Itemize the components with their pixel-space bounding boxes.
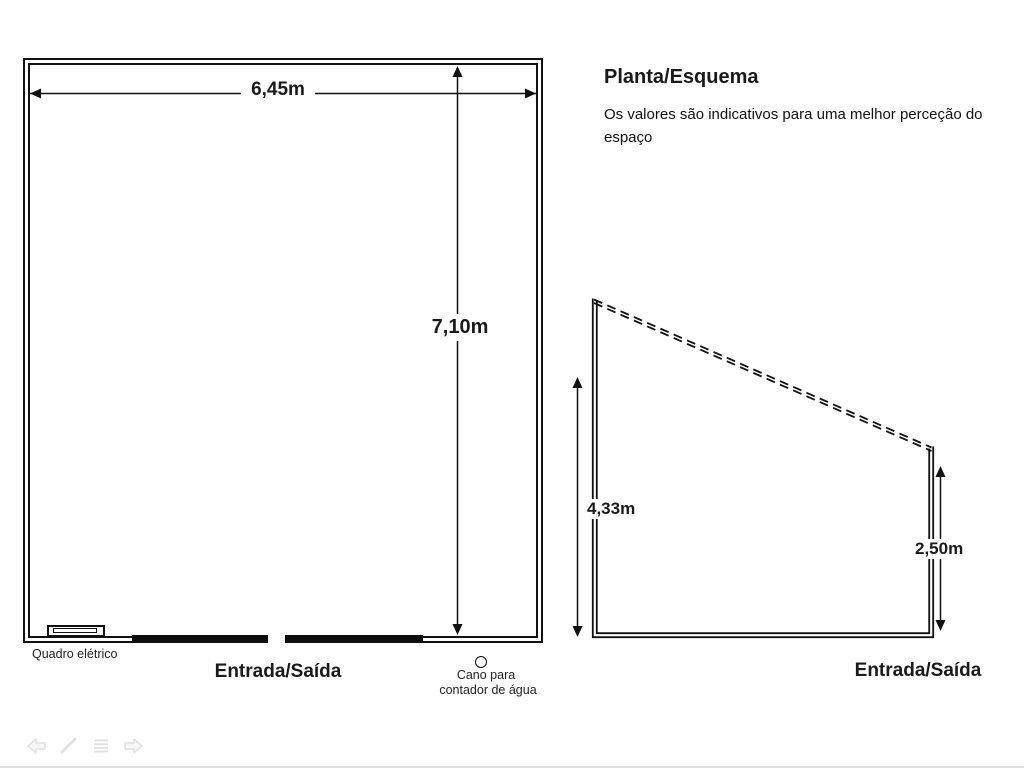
presentation-slide: { "slide": { "title": "Planta/Esquema", … [0, 0, 1024, 768]
section-right-height-label: 2,50m [911, 539, 967, 559]
floor-plan-room-outline [23, 58, 543, 643]
section-left-height-label: 4,33m [584, 499, 638, 519]
pen-icon[interactable] [58, 736, 80, 756]
section-view-sloped-roof-dashed-line [594, 300, 932, 452]
electrical-panel-symbol [47, 625, 105, 637]
water-pipe-label-line1: Cano para [457, 668, 515, 682]
page-subtitle: Os valores são indicativos para uma melh… [604, 103, 996, 149]
menu-icon[interactable] [90, 736, 112, 756]
floor-plan-door-segment-right [285, 635, 423, 641]
water-pipe-label-line2: contador de água [439, 683, 536, 697]
floor-plan-entrance-label: Entrada/Saída [215, 661, 342, 683]
previous-slide-icon[interactable] [26, 736, 48, 756]
section-view-walls [593, 299, 933, 638]
electrical-panel-label: Quadro elétrico [32, 647, 117, 661]
page-title: Planta/Esquema [604, 66, 759, 89]
height-dimension-label: 7,10m [426, 314, 495, 341]
water-pipe-symbol [475, 656, 487, 668]
presenter-toolbar [26, 736, 144, 756]
floor-plan-door-opening [268, 634, 285, 645]
next-slide-icon[interactable] [122, 736, 144, 756]
floor-plan-door-segment-left [132, 635, 268, 641]
width-dimension-label: 6,45m [241, 79, 315, 101]
section-left-height-dimension-arrow [573, 377, 583, 637]
electrical-panel-symbol-inner [53, 628, 97, 633]
section-entrance-label: Entrada/Saída [855, 660, 982, 682]
